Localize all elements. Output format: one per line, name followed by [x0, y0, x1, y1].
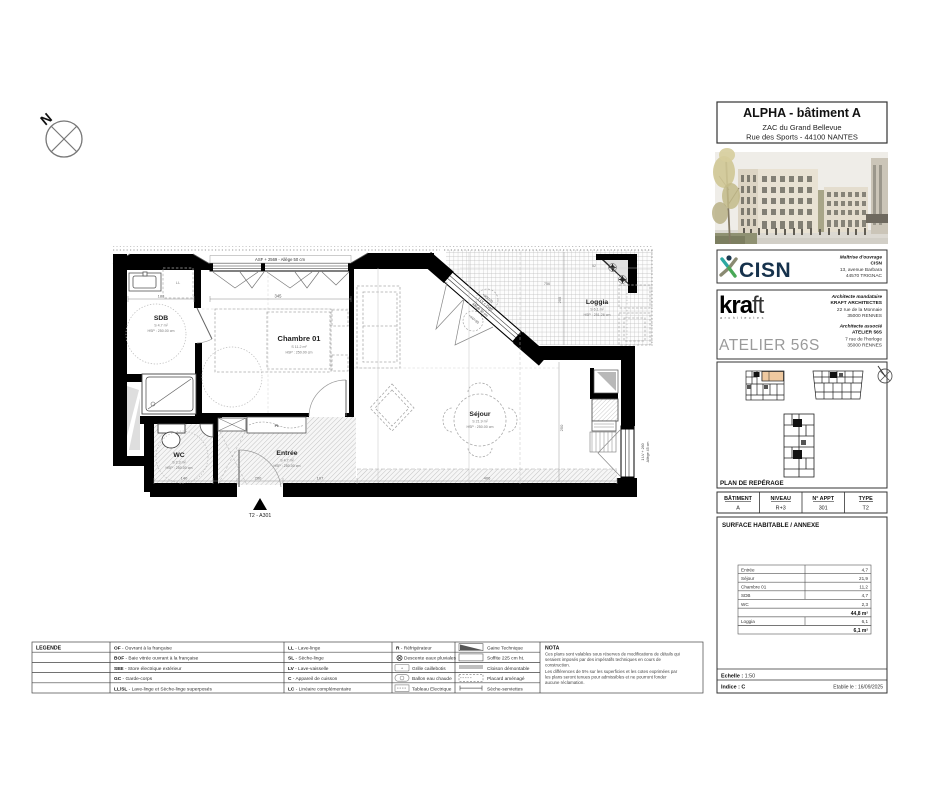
- svg-text:HSP : 250.00 cm: HSP : 250.00 cm: [273, 464, 300, 468]
- svg-text:S 21.9 m²: S 21.9 m²: [472, 420, 488, 424]
- svg-text:SDB: SDB: [741, 593, 750, 598]
- svg-text:A: A: [736, 506, 740, 512]
- svg-text:Les différences de 5% sur les: Les différences de 5% sur les superficie…: [545, 669, 678, 674]
- svg-text:Cloison démontable: Cloison démontable: [487, 666, 530, 672]
- svg-text:architectes: architectes: [720, 316, 766, 320]
- svg-text:Loggia: Loggia: [741, 619, 755, 624]
- svg-text:Ces plans sont valables sous r: Ces plans sont valables sous réserves de…: [545, 652, 680, 657]
- svg-text:44,8 m²: 44,8 m²: [851, 611, 869, 617]
- svg-text:seraient imposés par des impér: seraient imposés par des impératifs tech…: [545, 657, 661, 662]
- svg-text:250: 250: [559, 424, 564, 431]
- svg-text:35000 RENNES: 35000 RENNES: [847, 343, 882, 349]
- svg-text:13, avenue Barbara: 13, avenue Barbara: [840, 267, 882, 273]
- svg-text:HSP : 250.00 cm: HSP : 250.00 cm: [466, 425, 493, 429]
- svg-text:52: 52: [592, 264, 596, 268]
- svg-text:44570 TRIGNAC: 44570 TRIGNAC: [846, 273, 883, 279]
- svg-text:4,7: 4,7: [862, 593, 869, 598]
- svg-text:PLAN DE REPÉRAGE: PLAN DE REPÉRAGE: [720, 479, 784, 487]
- svg-text:CISN: CISN: [871, 261, 883, 267]
- svg-text:Sèche-serviettes: Sèche-serviettes: [487, 686, 523, 692]
- svg-text:S 4.7 m²: S 4.7 m²: [154, 324, 168, 328]
- svg-text:TYPE: TYPE: [859, 496, 873, 502]
- svg-text:SEE - Store électrique extérie: SEE - Store électrique extérieur: [114, 666, 182, 672]
- svg-text:Allège 45 cm: Allège 45 cm: [646, 442, 650, 463]
- svg-text:T2 - A301: T2 - A301: [249, 513, 272, 519]
- svg-text:301: 301: [819, 506, 828, 512]
- svg-text:NIVEAU: NIVEAU: [771, 496, 791, 502]
- svg-text:Descente eaux pluviales: Descente eaux pluviales: [404, 656, 457, 662]
- svg-text:aucune réclamation.: aucune réclamation.: [545, 680, 585, 685]
- svg-text:756: 756: [544, 282, 550, 286]
- svg-text:4,7: 4,7: [862, 568, 869, 573]
- svg-text:ALPHA - bâtiment A: ALPHA - bâtiment A: [743, 106, 861, 120]
- svg-text:BÂTIMENT: BÂTIMENT: [724, 495, 753, 502]
- svg-text:R - Réfrigérateur: R - Réfrigérateur: [396, 646, 432, 652]
- svg-text:Rue des Sports - 44100 NANTES: Rue des Sports - 44100 NANTES: [746, 133, 858, 142]
- svg-text:188: 188: [158, 294, 165, 299]
- svg-text:LC - Linéaire complémentaire: LC - Linéaire complémentaire: [288, 686, 352, 692]
- svg-text:KRAFT ARCHITECTES: KRAFT ARCHITECTES: [830, 300, 882, 306]
- svg-text:C - Appareil de cuisson: C - Appareil de cuisson: [288, 676, 338, 682]
- svg-text:kra: kra: [719, 292, 754, 319]
- svg-text:LEGENDE: LEGENDE: [36, 646, 62, 652]
- svg-text:HSP : 251.26 cm: HSP : 251.26 cm: [583, 313, 610, 317]
- svg-text:HSP : 250.00 cm: HSP : 250.00 cm: [285, 351, 312, 355]
- svg-text:ft: ft: [752, 292, 765, 319]
- svg-text:CISN: CISN: [739, 259, 791, 282]
- svg-text:SURFACE HABITABLE / ANNEXE: SURFACE HABITABLE / ANNEXE: [722, 522, 819, 529]
- svg-text:Loggia: Loggia: [586, 299, 608, 306]
- svg-text:PL: PL: [275, 424, 281, 428]
- svg-text:2,3: 2,3: [862, 602, 869, 607]
- svg-text:Soffite 225 cm ht.: Soffite 225 cm ht.: [487, 656, 524, 662]
- svg-text:Echelle : 1:50: Echelle : 1:50: [721, 674, 755, 680]
- svg-text:Chambre 01: Chambre 01: [741, 585, 767, 590]
- svg-text:6,1: 6,1: [862, 619, 869, 624]
- svg-text:S 4.7 m²: S 4.7 m²: [280, 459, 294, 463]
- svg-text:200: 200: [255, 476, 262, 481]
- svg-text:Indice : C: Indice : C: [721, 685, 745, 691]
- svg-text:WC: WC: [173, 452, 184, 459]
- svg-text:BOF - Baie vitrée ouvrant à la: BOF - Baie vitrée ouvrant à la française: [114, 656, 199, 662]
- svg-text:GC - Garde-corps: GC - Garde-corps: [114, 676, 153, 682]
- svg-text:345: 345: [275, 294, 283, 299]
- svg-text:construction.: construction.: [545, 663, 570, 668]
- svg-text:LL/SL - Lave-linge et Sèche-li: LL/SL - Lave-linge et Sèche-linge superp…: [114, 686, 212, 692]
- svg-text:LV - Lave-vaisselle: LV - Lave-vaisselle: [288, 666, 329, 672]
- svg-text:S 6.1 m²: S 6.1 m²: [590, 308, 604, 312]
- svg-text:107: 107: [317, 476, 324, 481]
- svg-text:Séjour: Séjour: [469, 411, 491, 418]
- svg-text:WC: WC: [741, 602, 749, 607]
- svg-text:7 rue de l'horloge: 7 rue de l'horloge: [845, 337, 882, 343]
- svg-text:21,9: 21,9: [859, 576, 868, 581]
- svg-text:HSP : 250.00 cm: HSP : 250.00 cm: [147, 329, 174, 333]
- svg-text:Architecte associé: Architecte associé: [839, 324, 883, 330]
- svg-text:22 rue de la Monnaie: 22 rue de la Monnaie: [837, 307, 882, 313]
- svg-text:Gaine Technique: Gaine Technique: [487, 646, 523, 652]
- svg-text:Chambre 01: Chambre 01: [278, 334, 321, 343]
- svg-text:Architecte mandataire: Architecte mandataire: [831, 294, 883, 300]
- svg-text:S 11.2 m²: S 11.2 m²: [291, 345, 307, 349]
- svg-text:140: 140: [181, 476, 188, 481]
- svg-text:Séjour: Séjour: [741, 576, 755, 581]
- svg-text:35000 RENNES: 35000 RENNES: [847, 313, 882, 319]
- svg-text:SDB: SDB: [154, 315, 168, 322]
- svg-text:les plans seront tenues pour a: les plans seront tenues pour admissibles…: [545, 675, 667, 680]
- svg-text:Placard aménagé: Placard aménagé: [487, 676, 525, 682]
- svg-text:ZAC du Grand Bellevue: ZAC du Grand Bellevue: [762, 123, 841, 132]
- svg-text:Tableau Electrique: Tableau Electrique: [412, 686, 452, 692]
- svg-text:HSP : 250.00 cm: HSP : 250.00 cm: [165, 466, 192, 470]
- svg-text:Ballon eau chaude: Ballon eau chaude: [412, 676, 452, 682]
- svg-text:Etablie le : 16/09/2025: Etablie le : 16/09/2025: [833, 685, 883, 691]
- svg-text:Entrée: Entrée: [276, 450, 297, 457]
- svg-text:ASF + 2569 - Allège 50 cm: ASF + 2569 - Allège 50 cm: [255, 257, 305, 262]
- svg-text:LL: LL: [176, 280, 181, 285]
- svg-text:ATELIER 56S: ATELIER 56S: [852, 330, 883, 336]
- svg-text:R+3: R+3: [776, 506, 786, 512]
- svg-text:6,1 m²: 6,1 m²: [854, 628, 869, 634]
- svg-text:LL - Lave-linge: LL - Lave-linge: [288, 646, 321, 652]
- svg-text:255: 255: [557, 296, 562, 303]
- svg-text:T2: T2: [863, 506, 869, 512]
- svg-text:11,2: 11,2: [859, 585, 868, 590]
- svg-text:406: 406: [484, 476, 491, 481]
- svg-text:Entrée: Entrée: [741, 568, 755, 573]
- svg-text:Maîtrise d'ouvrage: Maîtrise d'ouvrage: [840, 255, 883, 261]
- svg-text:1 LV + 260: 1 LV + 260: [641, 443, 645, 460]
- svg-text:S 2.3 m²: S 2.3 m²: [172, 461, 186, 465]
- svg-text:Grille caillebotis: Grille caillebotis: [412, 666, 446, 672]
- svg-text:N° APPT: N° APPT: [812, 496, 834, 502]
- svg-text:ATELIER 56S: ATELIER 56S: [719, 337, 820, 354]
- svg-text:OF - Ouvrant à la française: OF - Ouvrant à la française: [114, 646, 172, 652]
- svg-text:SL - Sèche-linge: SL - Sèche-linge: [288, 656, 324, 662]
